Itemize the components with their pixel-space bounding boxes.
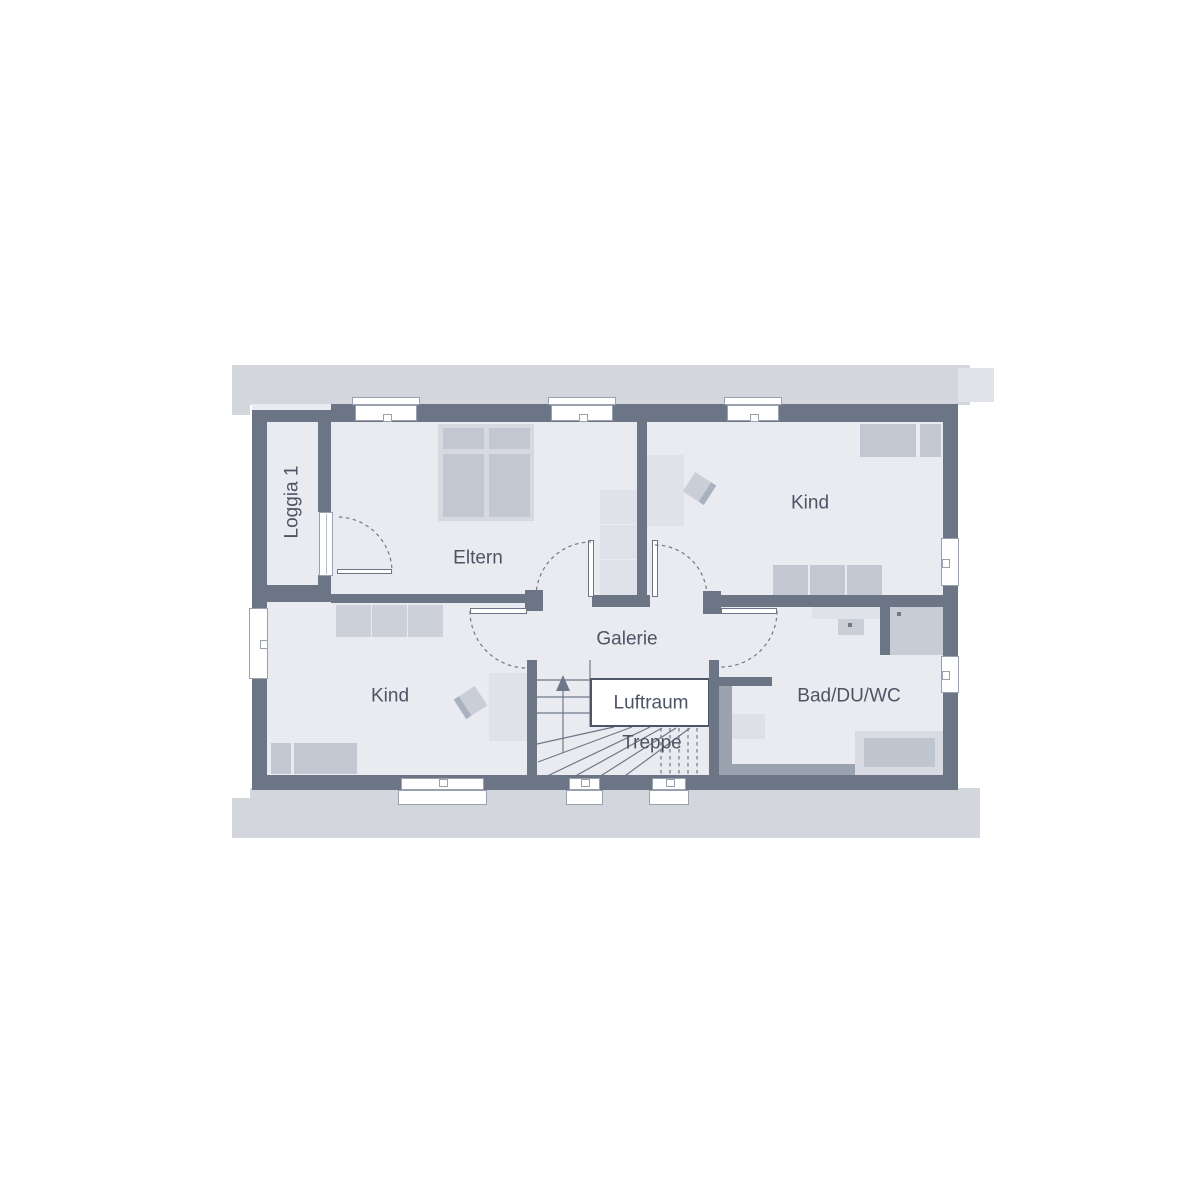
- window-latch: [750, 414, 759, 422]
- bad-wall-band-bottom: [718, 764, 855, 775]
- sofa-kind-top: [810, 565, 845, 596]
- window-sill: [398, 790, 487, 805]
- wall-exterior-bottom: [252, 775, 958, 790]
- roof-band-top-right: [958, 368, 994, 402]
- room-label-kind-bottom: Kind: [371, 687, 409, 706]
- window-left-kind-bottom: [249, 608, 268, 679]
- shower-drain-dot: [897, 612, 901, 616]
- window-top-2: [551, 405, 613, 421]
- window-bottom-2: [569, 778, 600, 790]
- wall-loggia-right-upper: [318, 422, 331, 512]
- window-latch: [383, 414, 392, 422]
- wardrobe-kind-bottom: [372, 605, 407, 637]
- window-latch: [942, 559, 950, 568]
- window-latch: [581, 779, 590, 787]
- wall-kind-top-bottom: [703, 595, 943, 607]
- sink-faucet-dot: [848, 623, 852, 627]
- door-leaf-loggia: [337, 569, 392, 574]
- wall-galerie-center-segment: [592, 595, 650, 607]
- bed-kind-bottom: [294, 743, 357, 774]
- window-latch: [260, 640, 268, 649]
- window-latch: [579, 414, 588, 422]
- bad-wall-band-vertical: [718, 686, 732, 775]
- wall-eltern-kind-bottom: [331, 594, 543, 603]
- room-label-luftraum: Luftraum: [614, 694, 689, 713]
- room-label-treppe: Treppe: [622, 734, 682, 753]
- window-right-kind-top: [941, 538, 959, 586]
- ground-band-bottom-left-step: [232, 798, 250, 838]
- door-leaf-kind-top: [652, 540, 658, 597]
- window-sill: [548, 397, 616, 405]
- window-sill: [649, 790, 689, 805]
- ground-band-bottom: [250, 788, 980, 838]
- wall-exterior-top: [331, 404, 958, 422]
- wardrobe-eltern: [600, 560, 637, 595]
- loggia-door-frame-line: [326, 514, 327, 574]
- window-sill: [724, 397, 782, 405]
- room-label-eltern: Eltern: [453, 549, 503, 568]
- window-sill: [352, 397, 420, 405]
- window-latch: [942, 671, 950, 680]
- bed-mattress: [443, 454, 484, 517]
- bathtub-bad: [855, 731, 943, 775]
- desk-kind-top: [647, 455, 684, 526]
- wardrobe-eltern: [600, 525, 637, 559]
- window-right-bad: [941, 656, 959, 693]
- wall-bad-spur: [718, 677, 772, 686]
- wall-shower-stub: [880, 595, 890, 655]
- toilet-bad: [732, 714, 765, 739]
- wall-stub-kind-bottom-door: [525, 590, 543, 611]
- wardrobe-kind-bottom: [408, 605, 443, 637]
- wall-divider-eltern-kind: [637, 422, 647, 596]
- bed-kind-top: [860, 424, 916, 457]
- window-bottom-1: [401, 778, 484, 790]
- floor-plan: Loggia 1 Eltern Kind Kind Galerie Luftra…: [0, 0, 1200, 1200]
- door-leaf-bad: [721, 608, 777, 614]
- door-leaf-eltern: [588, 540, 594, 597]
- bathtub-basin: [864, 738, 935, 767]
- desk-kind-bottom: [489, 673, 527, 741]
- room-label-bad: Bad/DU/WC: [797, 687, 900, 706]
- window-top-1: [355, 405, 417, 421]
- door-leaf-kind-bottom: [470, 608, 527, 614]
- bed-pillow: [489, 428, 530, 449]
- sink-bad: [838, 619, 864, 635]
- window-sill: [566, 790, 603, 805]
- wall-exterior-right: [943, 404, 958, 790]
- bed-pillow-kind-top: [920, 424, 941, 457]
- bed-eltern: [438, 424, 534, 521]
- bed-pillow: [443, 428, 484, 449]
- wall-stair-left: [527, 660, 537, 775]
- wall-stub-bad-door: [703, 591, 721, 614]
- sofa-kind-top: [773, 565, 808, 596]
- room-label-galerie: Galerie: [596, 630, 657, 649]
- bed-mattress: [489, 454, 530, 517]
- room-label-kind-top: Kind: [791, 494, 829, 513]
- vanity-counter-bad: [812, 607, 885, 619]
- window-bottom-3: [652, 778, 686, 790]
- sofa-kind-top: [847, 565, 882, 596]
- window-top-3: [727, 405, 779, 421]
- loggia-door-frame: [319, 512, 333, 576]
- room-label-loggia: Loggia 1: [283, 466, 302, 539]
- roof-band-top-left-step: [232, 405, 250, 415]
- bed-pillow-kind-bottom: [271, 743, 291, 774]
- wardrobe-eltern: [600, 490, 637, 524]
- window-latch: [439, 779, 448, 787]
- window-latch: [666, 779, 675, 787]
- wardrobe-kind-bottom: [336, 605, 371, 637]
- wall-loggia-bottom: [252, 585, 331, 602]
